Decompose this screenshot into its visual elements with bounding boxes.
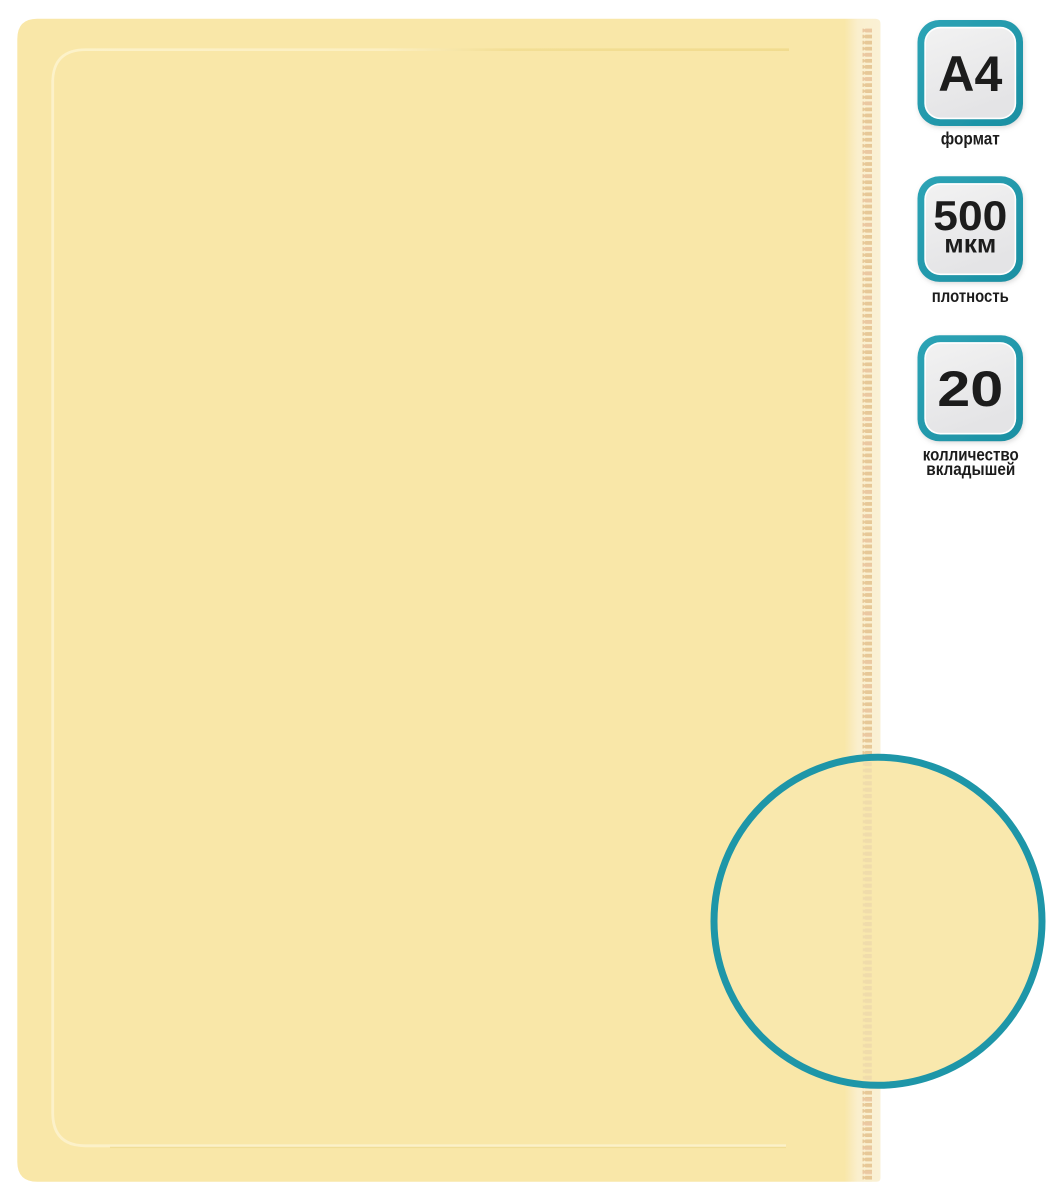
svg-text:A4: A4 [938,46,1002,102]
svg-text:20: 20 [937,361,1003,417]
svg-text:формат: формат [941,129,1000,149]
svg-text:мкм: мкм [944,228,996,258]
svg-text:плотность: плотность [932,286,1009,306]
svg-text:вкладышей: вкладышей [926,459,1015,479]
